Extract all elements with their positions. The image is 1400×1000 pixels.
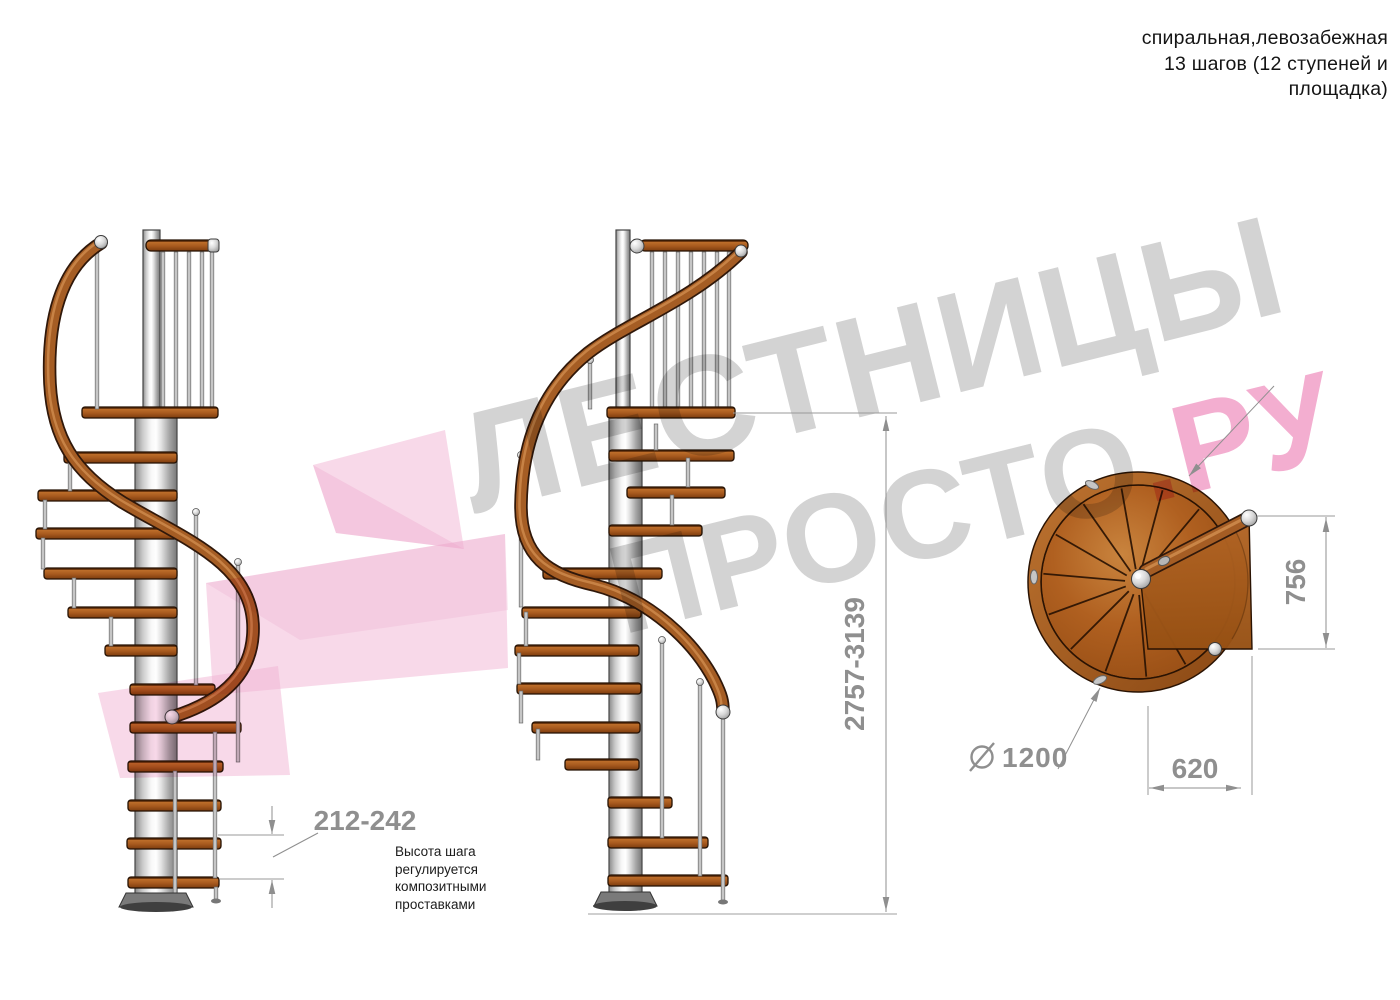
platform-depth-value: 756: [1280, 559, 1311, 606]
platform-width-value: 620: [1172, 753, 1219, 784]
dimension-diameter: 1200: [970, 386, 1274, 773]
title-line: спиральная,левозабежная: [1142, 26, 1388, 52]
step-height-note: Высота шага регулируется композитными пр…: [395, 843, 486, 913]
note-line: проставками: [395, 896, 486, 914]
drawing-title: спиральная,левозабежная 13 шагов (12 сту…: [1142, 26, 1388, 103]
title-line: площадка): [1142, 77, 1388, 103]
drawing-canvas: ЛЕСТНИЦЫ ПРОСТО.РУ 2757-3139 212-242: [0, 0, 1400, 1000]
note-line: регулируется: [395, 861, 486, 879]
note-line: Высота шага: [395, 843, 486, 861]
dimension-platform-width: 620: [1148, 656, 1252, 795]
note-line: композитными: [395, 878, 486, 896]
dimension-total-height: 2757-3139: [733, 413, 897, 912]
step-height-value: 212-242: [314, 805, 417, 836]
title-line: 13 шагов (12 ступеней и: [1142, 52, 1388, 78]
total-height-value: 2757-3139: [839, 597, 870, 731]
dimension-annotations: 2757-3139 212-242 756 620: [0, 0, 1400, 1000]
dimension-platform-depth: 756: [1257, 516, 1335, 649]
diameter-symbol: [970, 743, 994, 771]
dimension-step-height: 212-242: [218, 805, 416, 908]
diameter-value: 1200: [1002, 742, 1068, 773]
